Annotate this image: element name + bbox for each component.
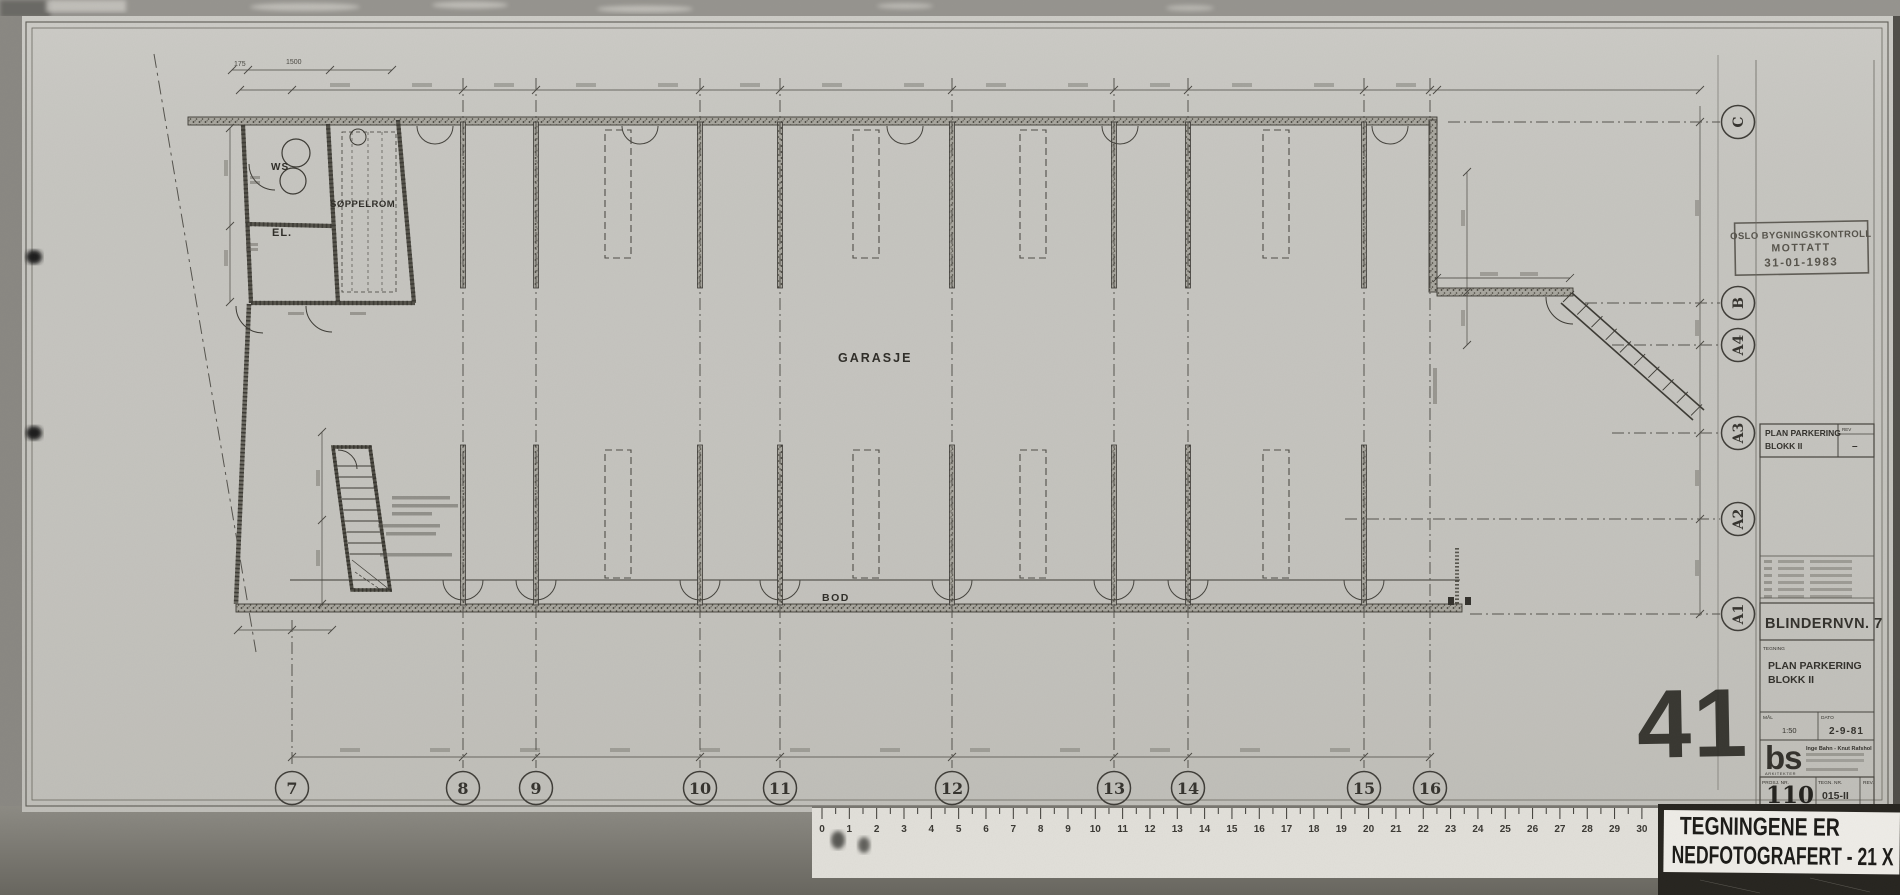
grain-overlay [0, 0, 1900, 895]
floorplan-svg: 78910111213141516 CBA4A3A2A1 WS EL. SØPP… [0, 0, 1900, 895]
scanned-drawing-photo: 78910111213141516 CBA4A3A2A1 WS EL. SØPP… [0, 0, 1900, 895]
